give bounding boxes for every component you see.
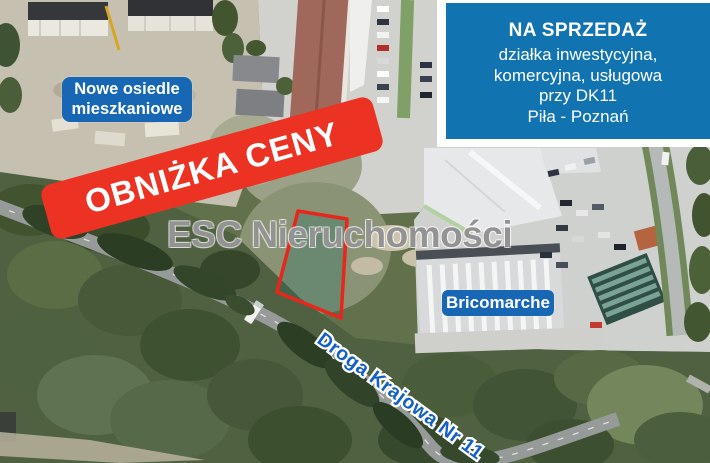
- info-line-4: Piła - Poznań: [446, 107, 710, 128]
- store-label: Bricomarche: [442, 290, 554, 316]
- new-estate-label-line2: mieszkaniowe: [62, 99, 192, 119]
- for-sale-title: NA SPRZEDAŻ: [446, 20, 710, 42]
- listing-image: Droga Krajowa Nr 11 ESC Nieruchomości OB…: [0, 0, 710, 463]
- new-estate-label: Nowe osiedle mieszkaniowe: [62, 77, 192, 122]
- info-line-1: działka inwestycyjna,: [446, 45, 710, 66]
- info-line-3: przy DK11: [446, 86, 710, 107]
- new-estate-label-line1: Nowe osiedle: [62, 79, 192, 99]
- info-line-2: komercyjna, usługowa: [446, 66, 710, 87]
- agency-watermark: ESC Nieruchomości: [167, 214, 512, 256]
- for-sale-info-box: NA SPRZEDAŻ działka inwestycyjna, komerc…: [437, 0, 710, 147]
